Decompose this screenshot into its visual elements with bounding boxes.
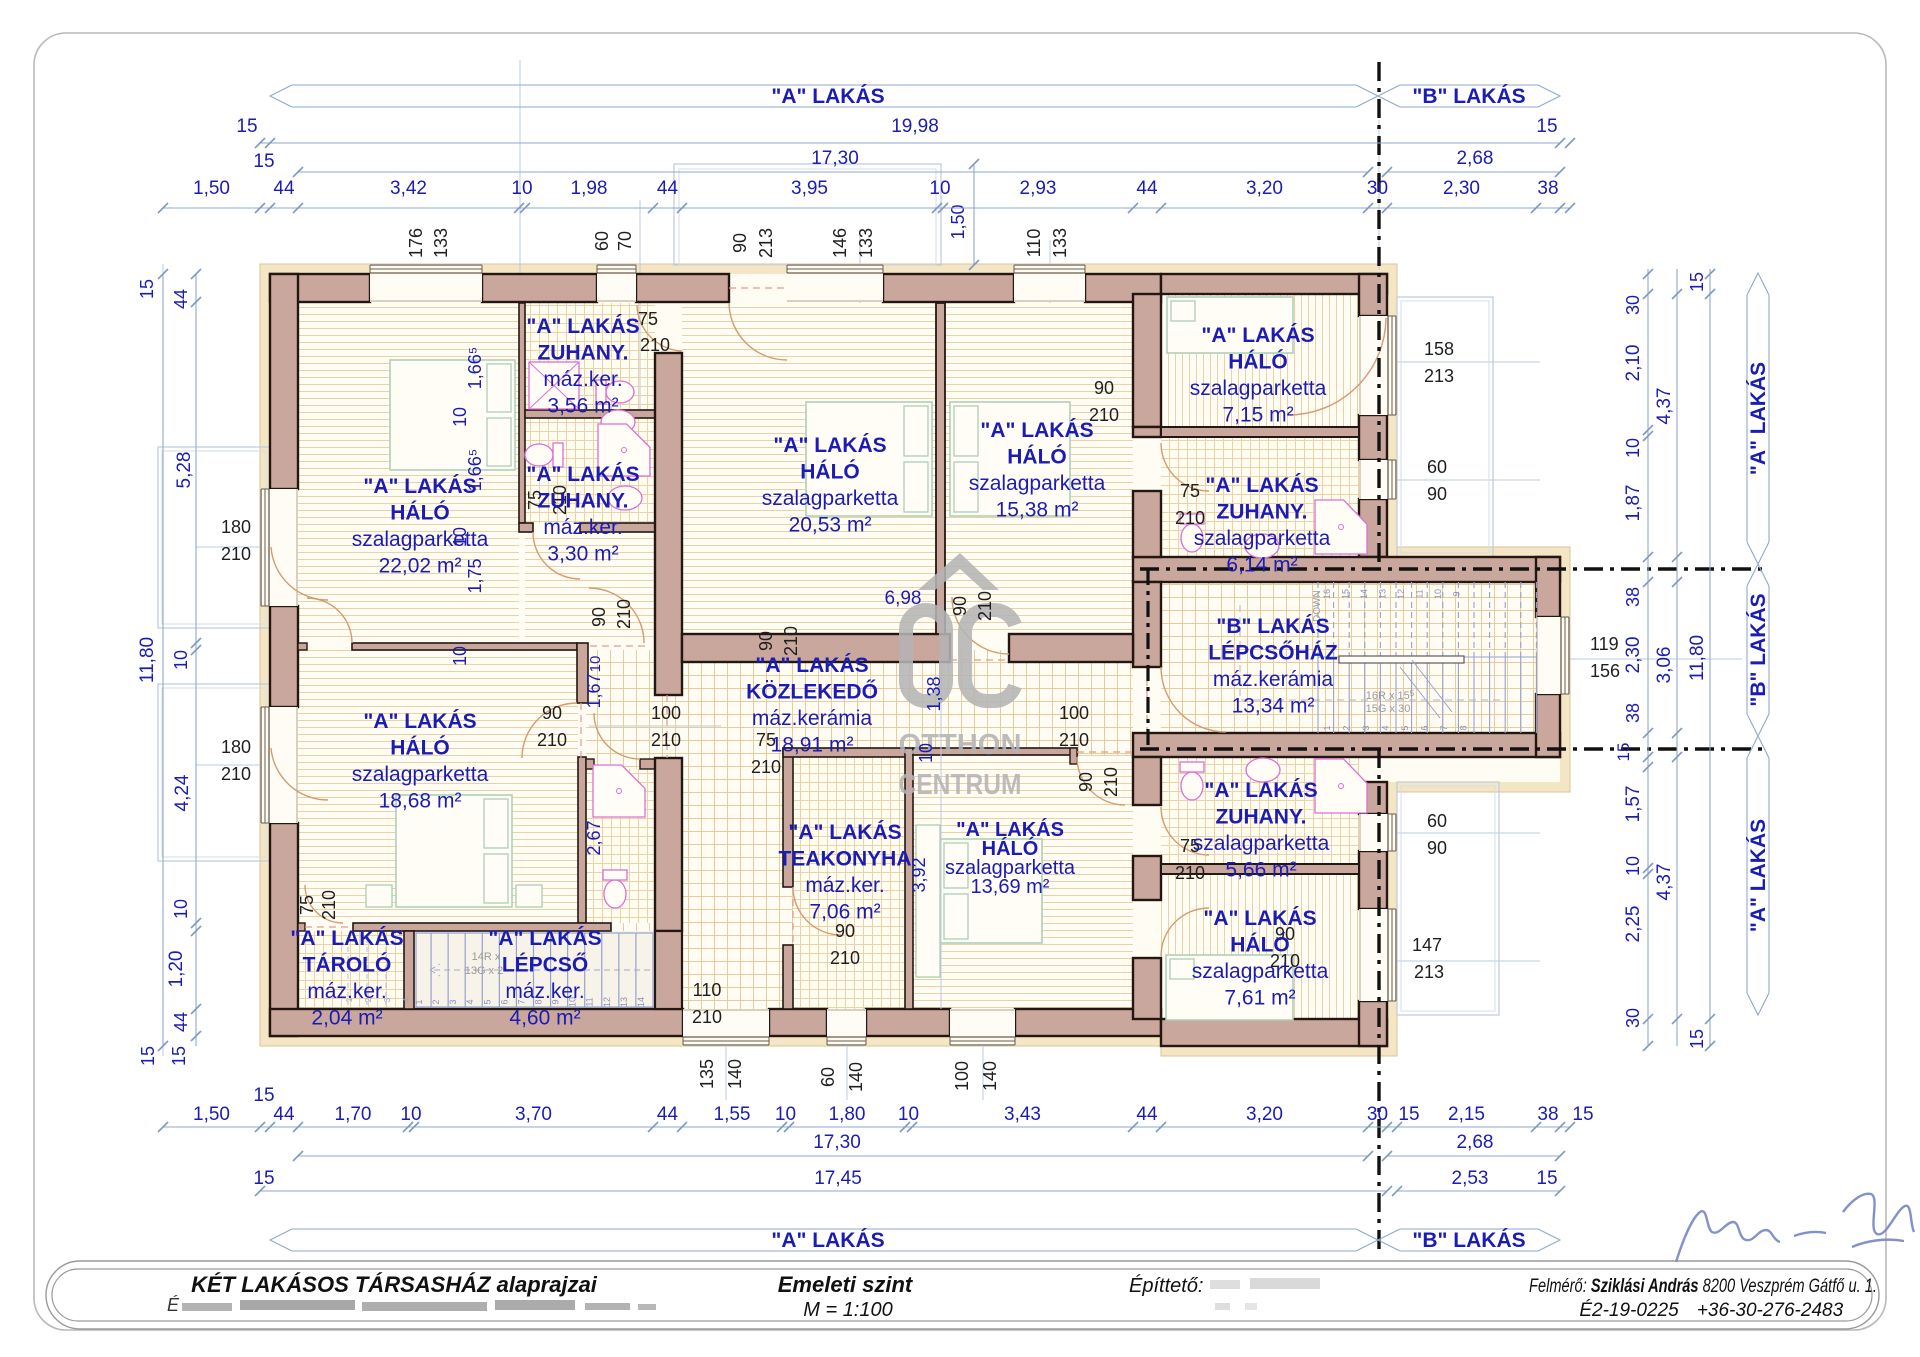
svg-text:5: 5 <box>482 999 492 1004</box>
svg-text:CENTRUM: CENTRUM <box>899 769 1022 801</box>
svg-text:15: 15 <box>137 279 157 299</box>
svg-text:"A" LAKÁS: "A" LAKÁS <box>755 654 868 677</box>
svg-text:100: 100 <box>1059 703 1089 723</box>
svg-text:ZUHANY.: ZUHANY. <box>1216 501 1307 524</box>
svg-text:10: 10 <box>1623 856 1643 876</box>
svg-text:60: 60 <box>1427 811 1447 831</box>
svg-text:3,95: 3,95 <box>791 178 828 199</box>
svg-text:máz.ker.: máz.ker. <box>543 368 622 391</box>
svg-text:8: 8 <box>1459 725 1469 730</box>
svg-text:7,06 m²: 7,06 m² <box>809 901 880 924</box>
svg-text:90: 90 <box>1094 378 1114 398</box>
svg-text:15: 15 <box>236 116 257 137</box>
svg-text:4,24: 4,24 <box>172 774 193 811</box>
svg-text:60: 60 <box>1427 457 1447 477</box>
svg-text:"B" LAKÁS: "B" LAKÁS <box>1747 593 1770 706</box>
svg-text:1: 1 <box>1322 725 1332 730</box>
svg-text:10: 10 <box>171 650 191 670</box>
svg-text:4: 4 <box>402 997 411 1002</box>
svg-text:44: 44 <box>171 289 191 309</box>
svg-text:máz.kerámia: máz.kerámia <box>1213 668 1334 691</box>
svg-text:70: 70 <box>615 231 635 251</box>
svg-text:30: 30 <box>1367 178 1388 199</box>
svg-text:13: 13 <box>619 997 629 1007</box>
svg-text:5: 5 <box>1400 725 1410 730</box>
svg-text:3,92: 3,92 <box>909 857 929 892</box>
svg-text:176: 176 <box>406 228 426 258</box>
svg-text:HÁLÓ: HÁLÓ <box>800 460 860 484</box>
svg-text:15: 15 <box>1536 116 1557 137</box>
svg-text:10: 10 <box>775 1104 796 1125</box>
svg-text:10: 10 <box>450 407 470 427</box>
svg-text:100: 100 <box>651 703 681 723</box>
svg-text:15: 15 <box>253 1168 274 1189</box>
svg-text:10: 10 <box>1433 589 1443 599</box>
svg-text:"A" LAKÁS: "A" LAKÁS <box>526 463 639 486</box>
svg-text:2,30: 2,30 <box>1443 178 1480 199</box>
svg-text:12: 12 <box>1396 589 1406 599</box>
svg-text:44: 44 <box>1136 1104 1158 1125</box>
svg-text:1,50: 1,50 <box>193 1104 230 1125</box>
svg-text:1,50: 1,50 <box>948 204 968 239</box>
svg-text:4: 4 <box>465 999 475 1004</box>
svg-text:Emeleti szint: Emeleti szint <box>778 1272 914 1297</box>
svg-text:180: 180 <box>221 737 251 757</box>
svg-text:90: 90 <box>542 703 562 723</box>
svg-text:1,80: 1,80 <box>829 1104 866 1125</box>
svg-text:"A" LAKÁS: "A" LAKÁS <box>1201 324 1314 347</box>
svg-text:140: 140 <box>725 1059 745 1089</box>
svg-text:210: 210 <box>221 544 251 564</box>
svg-text:17,45: 17,45 <box>814 1168 862 1189</box>
svg-text:210: 210 <box>221 764 251 784</box>
svg-text:HÁLÓ: HÁLÓ <box>390 501 450 525</box>
svg-text:15: 15 <box>1341 589 1351 599</box>
svg-text:210: 210 <box>781 626 801 656</box>
svg-text:3,30 m²: 3,30 m² <box>547 543 618 566</box>
svg-text:10: 10 <box>450 646 470 666</box>
svg-text:7: 7 <box>1439 725 1449 730</box>
svg-text:11,80: 11,80 <box>137 637 158 683</box>
svg-text:3: 3 <box>1361 725 1371 730</box>
svg-text:15: 15 <box>1572 1104 1593 1125</box>
svg-text:1,38: 1,38 <box>924 676 944 711</box>
svg-text:15,38 m²: 15,38 m² <box>996 499 1079 522</box>
svg-text:"A" LAKÁS: "A" LAKÁS <box>1747 362 1770 475</box>
svg-text:3,56 m²: 3,56 m² <box>547 395 618 418</box>
svg-text:17,30: 17,30 <box>811 148 859 169</box>
svg-text:15: 15 <box>1614 743 1633 762</box>
svg-text:É: É <box>167 1295 180 1315</box>
svg-text:13G x 2: 13G x 2 <box>465 965 504 977</box>
svg-text:210: 210 <box>1175 508 1205 528</box>
svg-text:szalagparketta: szalagparketta <box>1190 377 1327 400</box>
svg-text:HÁLÓ: HÁLÓ <box>1230 933 1290 957</box>
svg-text:210: 210 <box>830 948 860 968</box>
svg-text:38: 38 <box>1537 178 1558 199</box>
svg-text:5,66 m²: 5,66 m² <box>1225 859 1296 882</box>
svg-text:147: 147 <box>1412 935 1442 955</box>
svg-text:210: 210 <box>751 757 781 777</box>
svg-text:1,66⁵: 1,66⁵ <box>465 347 485 390</box>
svg-text:"A" LAKÁS: "A" LAKÁS <box>1747 819 1770 932</box>
svg-text:110: 110 <box>1024 229 1044 258</box>
svg-text:3,70: 3,70 <box>515 1104 552 1125</box>
svg-text:90: 90 <box>1427 484 1447 504</box>
svg-text:2,30: 2,30 <box>1623 637 1644 674</box>
svg-text:10: 10 <box>916 743 936 763</box>
svg-text:1,75: 1,75 <box>465 558 485 593</box>
svg-text:szalagparketta: szalagparketta <box>352 528 489 551</box>
svg-text:75: 75 <box>297 895 317 915</box>
svg-text:3,42: 3,42 <box>390 178 427 199</box>
svg-text:"A" LAKÁS: "A" LAKÁS <box>363 475 476 498</box>
svg-text:LÉPCSŐHÁZ: LÉPCSŐHÁZ <box>1208 642 1338 665</box>
svg-text:146: 146 <box>830 228 850 258</box>
svg-text:"A" LAKÁS: "A" LAKÁS <box>363 710 476 733</box>
svg-text:180: 180 <box>221 517 251 537</box>
svg-text:szalagparketta: szalagparketta <box>1193 832 1330 855</box>
svg-text:210: 210 <box>614 599 634 629</box>
svg-text:133: 133 <box>431 228 451 258</box>
svg-text:44: 44 <box>657 178 679 199</box>
svg-text:38: 38 <box>1537 1104 1558 1125</box>
svg-text:18,68 m²: 18,68 m² <box>379 790 462 813</box>
svg-text:9: 9 <box>1452 591 1462 596</box>
svg-text:10: 10 <box>929 178 950 199</box>
svg-text:44: 44 <box>273 178 295 199</box>
svg-text:1: 1 <box>414 999 424 1004</box>
svg-text:60: 60 <box>818 1067 838 1087</box>
svg-text:1,67: 1,67 <box>584 673 604 708</box>
svg-text:"A" LAKÁS: "A" LAKÁS <box>771 85 884 108</box>
svg-text:2,68: 2,68 <box>1457 148 1494 169</box>
svg-text:10: 10 <box>587 656 604 673</box>
svg-text:ZUHANY.: ZUHANY. <box>1215 806 1306 829</box>
svg-text:16R x 155: 16R x 155 <box>1366 689 1415 702</box>
svg-text:14: 14 <box>636 997 646 1007</box>
svg-text:3,20: 3,20 <box>1246 1104 1283 1125</box>
svg-text:10: 10 <box>511 178 532 199</box>
svg-text:"A" LAKÁS: "A" LAKÁS <box>1203 907 1316 930</box>
svg-text:1,98: 1,98 <box>571 178 608 199</box>
svg-text:14R x: 14R x <box>472 951 501 963</box>
svg-text:38: 38 <box>1623 587 1643 607</box>
svg-text:M = 1:100: M = 1:100 <box>803 1299 893 1321</box>
svg-text:TÁROLÓ: TÁROLÓ <box>303 953 392 977</box>
svg-text:máz.kerámia: máz.kerámia <box>752 707 873 730</box>
svg-text:+36-30-276-2483: +36-30-276-2483 <box>1697 1300 1844 1321</box>
svg-text:2: 2 <box>431 999 441 1004</box>
svg-text:17,30: 17,30 <box>813 1132 861 1153</box>
svg-text:4,37: 4,37 <box>1654 864 1675 901</box>
svg-text:HÁLÓ: HÁLÓ <box>390 736 450 760</box>
svg-text:máz.ker.: máz.ker. <box>805 874 884 897</box>
svg-text:44: 44 <box>1136 178 1158 199</box>
svg-text:10: 10 <box>171 899 191 919</box>
svg-text:210: 210 <box>640 335 670 355</box>
svg-text:KÉT LAKÁSOS TÁRSASHÁZ alaprajz: KÉT LAKÁSOS TÁRSASHÁZ alaprajzai <box>191 1272 598 1297</box>
svg-text:1,57: 1,57 <box>1623 786 1644 823</box>
svg-text:210: 210 <box>692 1007 722 1027</box>
svg-text:213: 213 <box>756 228 776 258</box>
svg-text:44: 44 <box>171 1012 191 1032</box>
svg-text:133: 133 <box>856 228 876 258</box>
svg-text:133: 133 <box>1050 228 1070 258</box>
svg-text:É2-19-0225: É2-19-0225 <box>1579 1300 1679 1321</box>
svg-text:2,25: 2,25 <box>1623 906 1644 943</box>
svg-text:2,53: 2,53 <box>1452 1168 1489 1189</box>
svg-text:15: 15 <box>1687 272 1707 292</box>
svg-text:10: 10 <box>1623 438 1643 458</box>
svg-text:30: 30 <box>1623 1008 1643 1028</box>
svg-text:"A" LAKÁS: "A" LAKÁS <box>526 315 639 338</box>
svg-text:15G x 30: 15G x 30 <box>1366 703 1411 715</box>
svg-text:19,98: 19,98 <box>891 116 939 137</box>
svg-text:140: 140 <box>846 1062 866 1092</box>
svg-text:2,67: 2,67 <box>584 820 604 855</box>
svg-text:"A" LAKÁS: "A" LAKÁS <box>488 927 601 950</box>
svg-text:6,14 m²: 6,14 m² <box>1226 554 1297 577</box>
svg-text:210: 210 <box>651 730 681 750</box>
svg-text:ZUHANY.: ZUHANY. <box>537 490 628 513</box>
svg-text:10: 10 <box>898 1104 919 1125</box>
svg-text:75: 75 <box>638 309 658 329</box>
svg-text:15: 15 <box>253 1085 274 1106</box>
svg-text:30: 30 <box>1623 295 1643 315</box>
svg-text:LÉPCSŐ: LÉPCSŐ <box>502 954 588 977</box>
svg-text:15: 15 <box>1536 1168 1557 1189</box>
svg-text:5,28: 5,28 <box>174 452 195 489</box>
svg-text:90: 90 <box>589 607 609 627</box>
svg-text:3: 3 <box>448 999 458 1004</box>
svg-text:2: 2 <box>1342 725 1352 730</box>
svg-text:210: 210 <box>975 591 995 621</box>
svg-text:15: 15 <box>169 1046 189 1066</box>
svg-text:30: 30 <box>1367 1104 1388 1125</box>
svg-text:"A" LAKÁS: "A" LAKÁS <box>1204 779 1317 802</box>
svg-text:4: 4 <box>1381 725 1391 730</box>
svg-text:1,55: 1,55 <box>714 1104 751 1125</box>
svg-text:110: 110 <box>693 980 722 1000</box>
svg-text:KÖZLEKEDŐ: KÖZLEKEDŐ <box>746 681 878 704</box>
svg-text:2,93: 2,93 <box>1020 178 1057 199</box>
svg-text:38: 38 <box>1623 703 1643 723</box>
svg-text:156: 156 <box>1590 661 1620 681</box>
svg-text:szalagparketta: szalagparketta <box>762 487 899 510</box>
svg-text:15: 15 <box>138 1046 158 1066</box>
svg-text:7,15 m²: 7,15 m² <box>1222 404 1293 427</box>
svg-text:szalagparketta: szalagparketta <box>352 763 489 786</box>
svg-text:90: 90 <box>1427 838 1447 858</box>
svg-text:3,43: 3,43 <box>1004 1104 1041 1125</box>
svg-text:1,70: 1,70 <box>335 1104 372 1125</box>
svg-text:6: 6 <box>1420 725 1430 730</box>
svg-text:Építtető:: Építtető: <box>1129 1274 1204 1297</box>
svg-text:"B" LAKÁS: "B" LAKÁS <box>1412 1229 1525 1252</box>
svg-text:140: 140 <box>980 1061 1000 1091</box>
svg-text:"A" LAKÁS: "A" LAKÁS <box>773 434 886 457</box>
svg-text:Felmérő: Sziklási András 8200: Felmérő: Sziklási András 8200 Veszprém G… <box>1529 1276 1877 1297</box>
svg-text:TEAKONYHA: TEAKONYHA <box>778 848 911 871</box>
svg-text:3,20: 3,20 <box>1246 178 1283 199</box>
svg-text:210: 210 <box>537 730 567 750</box>
svg-text:"A" LAKÁS: "A" LAKÁS <box>290 927 403 950</box>
svg-text:3,06: 3,06 <box>1654 647 1675 684</box>
svg-text:HÁLÓ: HÁLÓ <box>1007 445 1067 469</box>
svg-text:"B" LAKÁS: "B" LAKÁS <box>1412 85 1525 108</box>
svg-text:13,69 m²: 13,69 m² <box>971 876 1050 898</box>
svg-text:44: 44 <box>273 1104 295 1125</box>
svg-text:ZUHANY.: ZUHANY. <box>537 342 628 365</box>
svg-text:20,53 m²: 20,53 m² <box>789 514 872 537</box>
svg-text:210: 210 <box>1101 767 1121 797</box>
svg-text:1,50: 1,50 <box>193 178 230 199</box>
svg-text:HÁLÓ: HÁLÓ <box>1228 350 1288 374</box>
svg-text:1,20: 1,20 <box>166 951 187 988</box>
svg-text:210: 210 <box>1059 730 1089 750</box>
svg-text:máz.ker.: máz.ker. <box>543 516 622 539</box>
svg-text:75: 75 <box>1180 481 1200 501</box>
svg-text:2,68: 2,68 <box>1457 1132 1494 1153</box>
svg-text:2,10: 2,10 <box>1623 345 1644 382</box>
svg-text:210: 210 <box>1175 863 1205 883</box>
svg-text:14: 14 <box>1359 589 1369 599</box>
svg-text:90: 90 <box>756 631 776 651</box>
svg-text:7,61 m²: 7,61 m² <box>1224 987 1295 1010</box>
svg-text:15: 15 <box>1687 1029 1707 1049</box>
svg-text:11: 11 <box>585 997 595 1006</box>
svg-text:2,15: 2,15 <box>1448 1104 1485 1125</box>
svg-text:szalagparketta: szalagparketta <box>1192 960 1329 983</box>
svg-text:"A" LAKÁS: "A" LAKÁS <box>980 419 1093 442</box>
svg-text:máz.ker.: máz.ker. <box>307 980 386 1003</box>
svg-text:90: 90 <box>1076 772 1096 792</box>
svg-text:22,02 m²: 22,02 m² <box>379 555 462 578</box>
svg-text:12: 12 <box>602 997 612 1007</box>
svg-text:119: 119 <box>1590 634 1619 654</box>
svg-text:szalagparketta: szalagparketta <box>969 472 1106 495</box>
svg-text:4,60 m²: 4,60 m² <box>509 1007 580 1030</box>
svg-text:szalagparketta: szalagparketta <box>1194 527 1331 550</box>
svg-text:1,87: 1,87 <box>1623 485 1644 522</box>
svg-text:16: 16 <box>1322 589 1332 599</box>
svg-text:60: 60 <box>592 231 612 251</box>
svg-text:13,34 m²: 13,34 m² <box>1232 695 1315 718</box>
svg-text:13: 13 <box>1378 589 1388 599</box>
svg-text:90: 90 <box>950 596 970 616</box>
svg-text:158: 158 <box>1424 339 1454 359</box>
svg-text:135: 135 <box>697 1059 717 1089</box>
svg-text:"A" LAKÁS: "A" LAKÁS <box>788 821 901 844</box>
svg-text:6,98: 6,98 <box>885 588 922 609</box>
svg-text:210: 210 <box>319 890 339 920</box>
svg-text:90: 90 <box>730 233 750 253</box>
svg-text:11: 11 <box>1415 589 1425 598</box>
svg-text:15: 15 <box>253 151 274 172</box>
svg-text:15: 15 <box>1398 1104 1419 1125</box>
svg-text:"A" LAKÁS: "A" LAKÁS <box>771 1229 884 1252</box>
svg-text:4,37: 4,37 <box>1654 388 1675 425</box>
svg-text:10: 10 <box>400 1104 421 1125</box>
svg-text:"A" LAKÁS: "A" LAKÁS <box>1205 474 1318 497</box>
svg-text:2,04 m²: 2,04 m² <box>311 1007 382 1030</box>
svg-text:213: 213 <box>1424 366 1454 386</box>
svg-text:213: 213 <box>1414 962 1444 982</box>
svg-text:máz.ker.: máz.ker. <box>505 980 584 1003</box>
svg-text:44: 44 <box>657 1104 679 1125</box>
svg-text:90: 90 <box>835 921 855 941</box>
svg-text:18,91 m²: 18,91 m² <box>771 734 854 757</box>
svg-text:11,80: 11,80 <box>1687 635 1708 681</box>
svg-text:100: 100 <box>952 1061 972 1091</box>
svg-text:"B" LAKÁS: "B" LAKÁS <box>1216 615 1329 638</box>
